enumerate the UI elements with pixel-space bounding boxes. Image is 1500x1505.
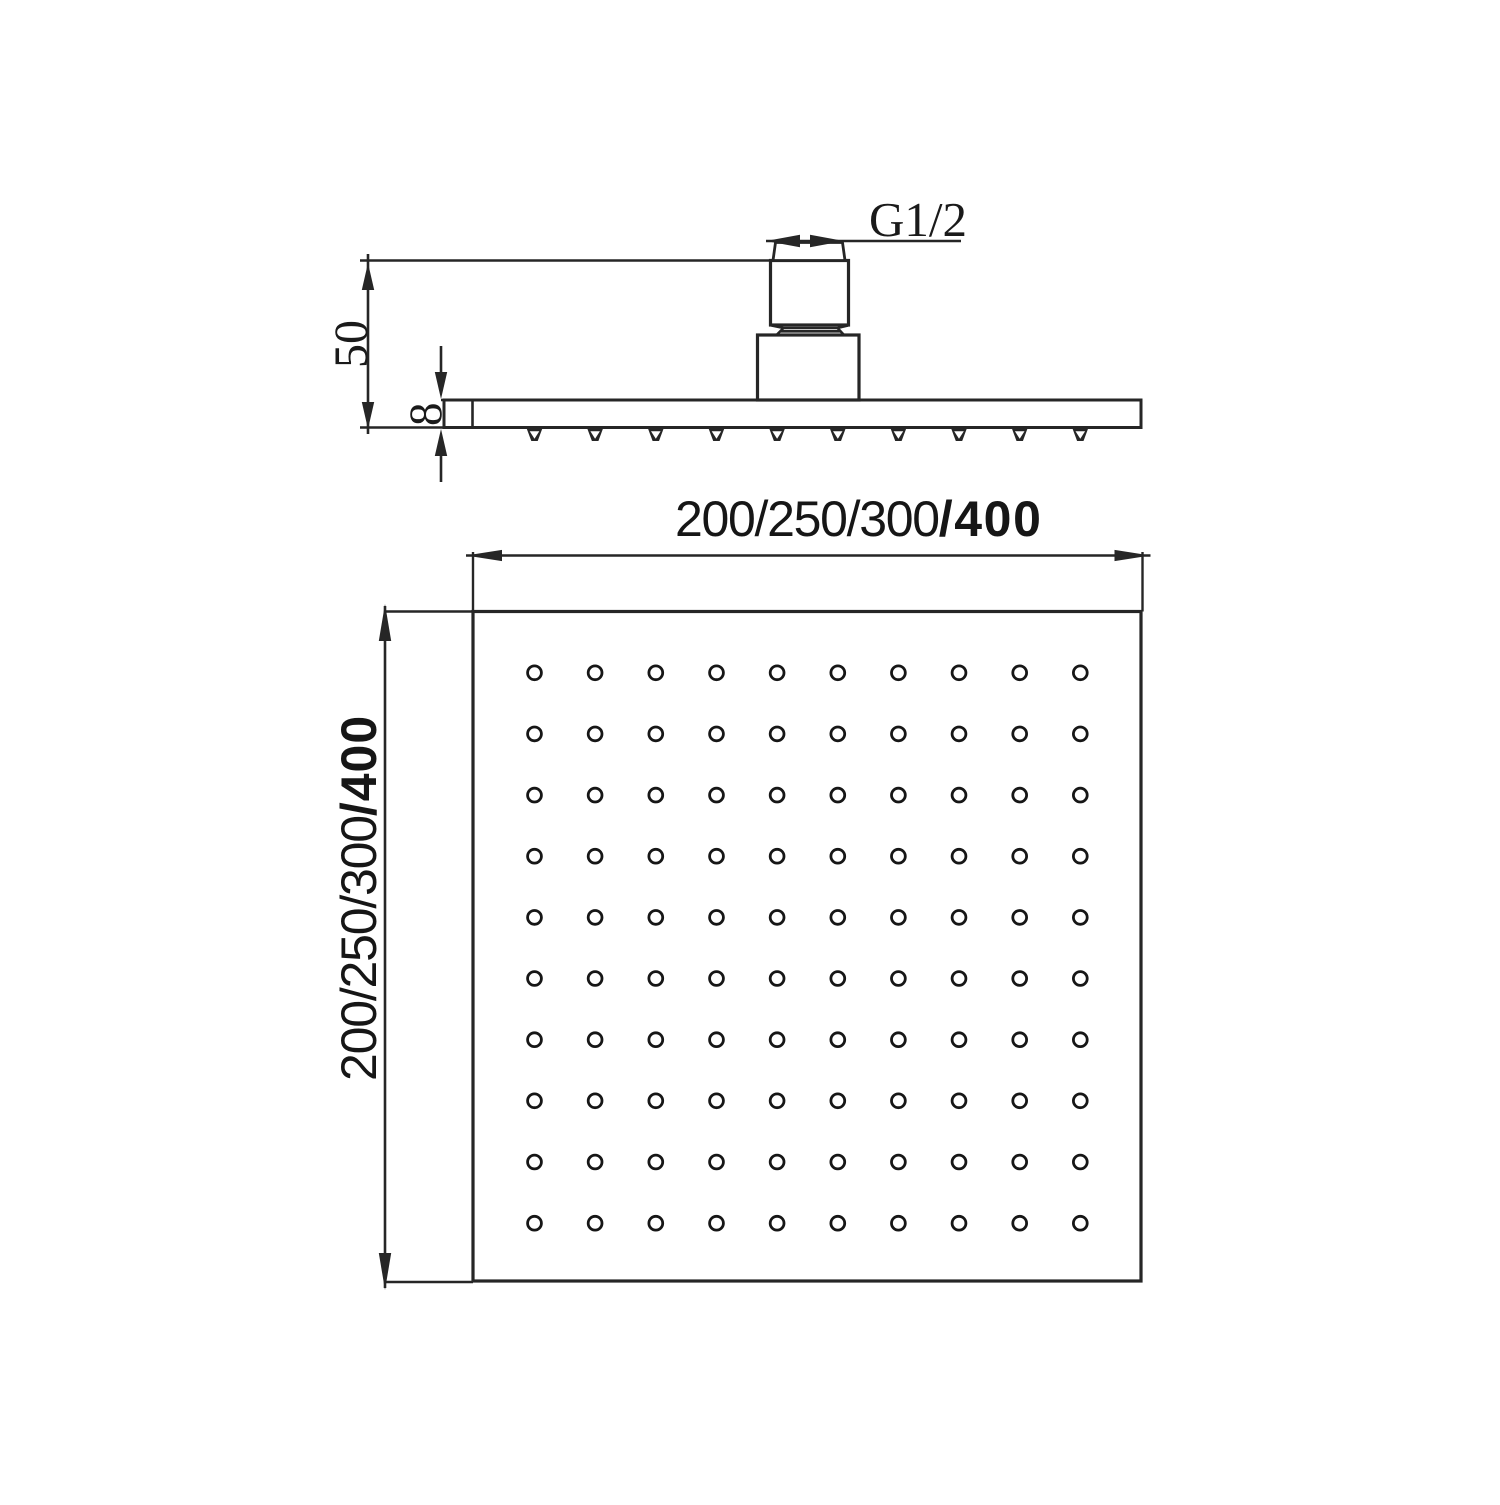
svg-text:50: 50 [325, 320, 378, 368]
svg-text:200/250/300/400: 200/250/300/400 [331, 715, 387, 1081]
svg-text:G1/2: G1/2 [869, 192, 967, 247]
svg-text:200/250/300/400: 200/250/300/400 [675, 491, 1042, 547]
svg-text:8: 8 [400, 403, 452, 427]
